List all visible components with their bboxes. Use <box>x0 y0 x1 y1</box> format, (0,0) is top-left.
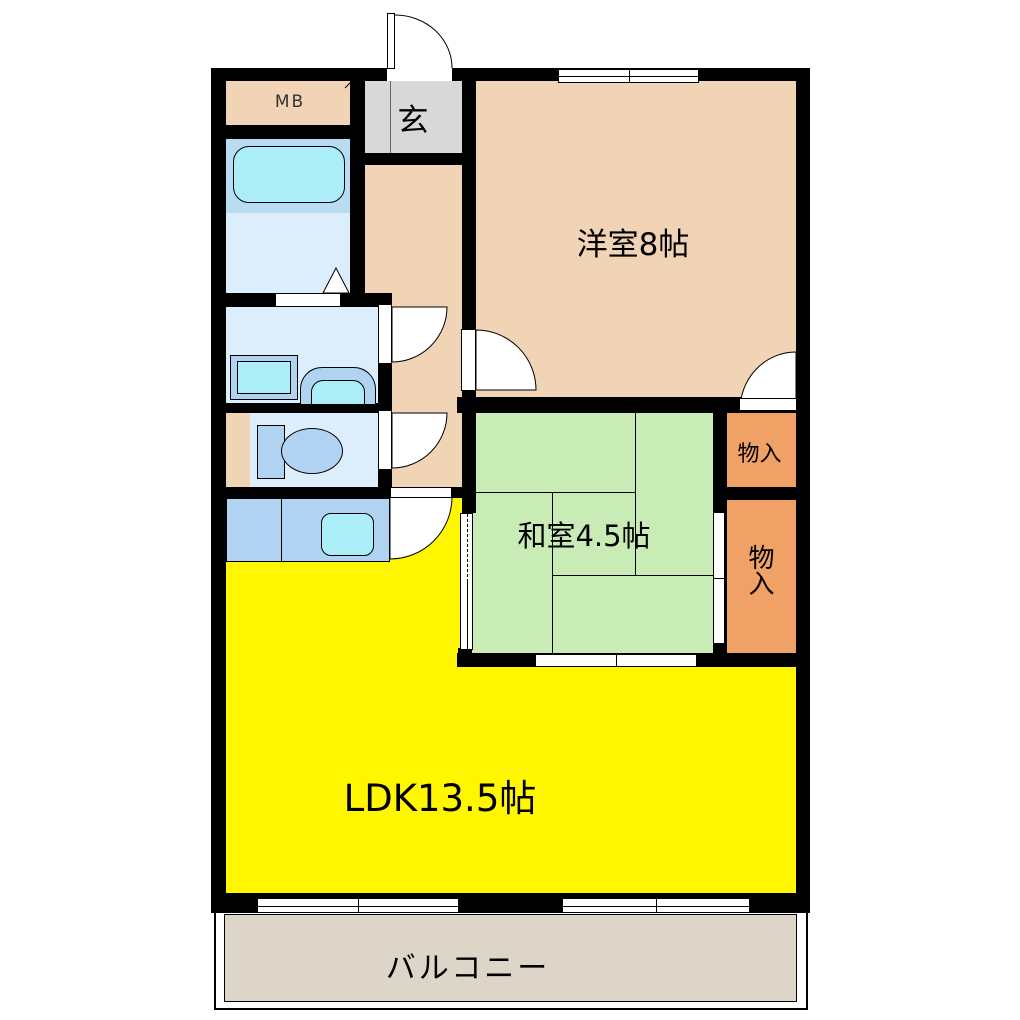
entrance-door-arc <box>395 15 452 68</box>
toilet-door-leaf <box>379 411 392 470</box>
label-entrance: 玄 <box>382 94 444 140</box>
western-door-arc <box>476 330 536 390</box>
ldk-door-leaf <box>391 488 452 498</box>
label-ldk: LDK13.5帖 <box>250 770 630 820</box>
label-western-room: 洋室8帖 <box>483 216 783 266</box>
label-balcony: バルコニー <box>268 941 668 989</box>
entrance-door-leaf <box>388 14 395 69</box>
label-storage-lower: 物入 <box>723 515 796 625</box>
ldk-door-arc <box>390 497 452 559</box>
washroom-door-leaf <box>379 305 392 364</box>
label-storage-upper: 物入 <box>723 436 796 468</box>
meter-box-notch <box>345 79 354 88</box>
label-meter-box: MB <box>245 86 335 118</box>
toilet-door-arc <box>392 413 447 468</box>
floorplan: MB 玄 洋室8帖 和室4.5帖 物入 物入 LDK13.5帖 バルコニー <box>0 0 1020 1020</box>
western-door-leaf <box>462 330 476 391</box>
bathroom-door-triangle <box>323 268 349 293</box>
label-japanese-room: 和室4.5帖 <box>468 509 700 559</box>
closet-door-leaf <box>740 399 797 411</box>
washroom-door-arc <box>392 307 447 362</box>
